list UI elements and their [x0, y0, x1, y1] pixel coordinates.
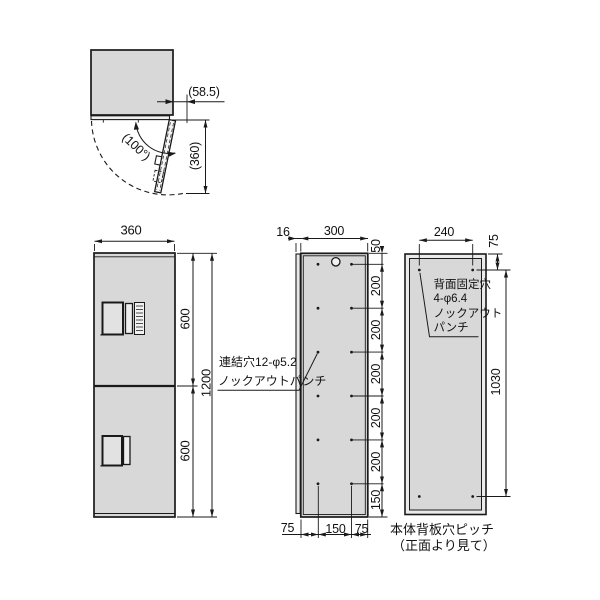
side-top-offset-dim: 50 — [370, 239, 383, 253]
side-hole-note-line1: 連結穴12-φ5.2 — [219, 356, 297, 368]
side-bottom-right-dim: 75 — [355, 523, 369, 536]
side-bottom-left-dim: 75 — [281, 522, 295, 535]
front-upper-door-dim: 600 — [178, 308, 191, 329]
back-caption-line1: 本体背板穴ピッチ — [390, 523, 494, 536]
front-lower-door-dim: 600 — [178, 440, 191, 461]
plan-door-handle — [155, 156, 162, 165]
plan-view — [91, 50, 225, 195]
side-depth-dim: 300 — [324, 225, 344, 238]
back-vertical-pitch-dim: 1030 — [490, 368, 503, 395]
front-width-dim: 360 — [120, 224, 141, 237]
back-note-line2: 4-φ6.4 — [434, 294, 468, 306]
back-top-offset-dim: 75 — [488, 234, 501, 248]
plan-body — [91, 50, 173, 115]
back-note-line1: 背面固定穴 — [434, 280, 492, 292]
back-caption-line2: （正面より見て） — [392, 539, 496, 552]
back-note-line4: パンチ — [434, 323, 469, 335]
side-bottom-offset-dim: 150 — [370, 490, 383, 510]
lower-door-handle — [101, 436, 131, 466]
side-hole-note-line2: ノックアウトパンチ — [218, 375, 326, 387]
drawing-canvas — [0, 0, 600, 600]
upper-door-handle — [101, 303, 145, 335]
back-hole-span-dim: 240 — [434, 226, 454, 239]
technical-drawing-page: (58.5) (100°) (360) 360 600 600 1200 16 … — [0, 0, 600, 600]
back-note-line3: ノックアウト — [434, 309, 503, 321]
side-door-thickness-dim: 16 — [276, 226, 290, 239]
plan-front-edge — [91, 116, 170, 120]
plan-door-width-dim: (360) — [189, 142, 202, 170]
top-hole — [332, 258, 340, 266]
front-total-height-dim: 1200 — [199, 369, 212, 397]
side-pitch-dim-2: 200 — [370, 320, 383, 340]
plan-protrusion-dim: (58.5) — [188, 86, 219, 99]
side-bottom-center-dim: 150 — [325, 522, 345, 535]
side-pitch-dim-3: 200 — [370, 364, 383, 384]
side-pitch-dim-1: 200 — [370, 276, 383, 296]
upper-handle-label — [135, 303, 145, 335]
side-pitch-dim-4: 200 — [370, 408, 383, 428]
plan-open-door — [149, 119, 175, 193]
side-pitch-dim-5: 200 — [370, 452, 383, 472]
